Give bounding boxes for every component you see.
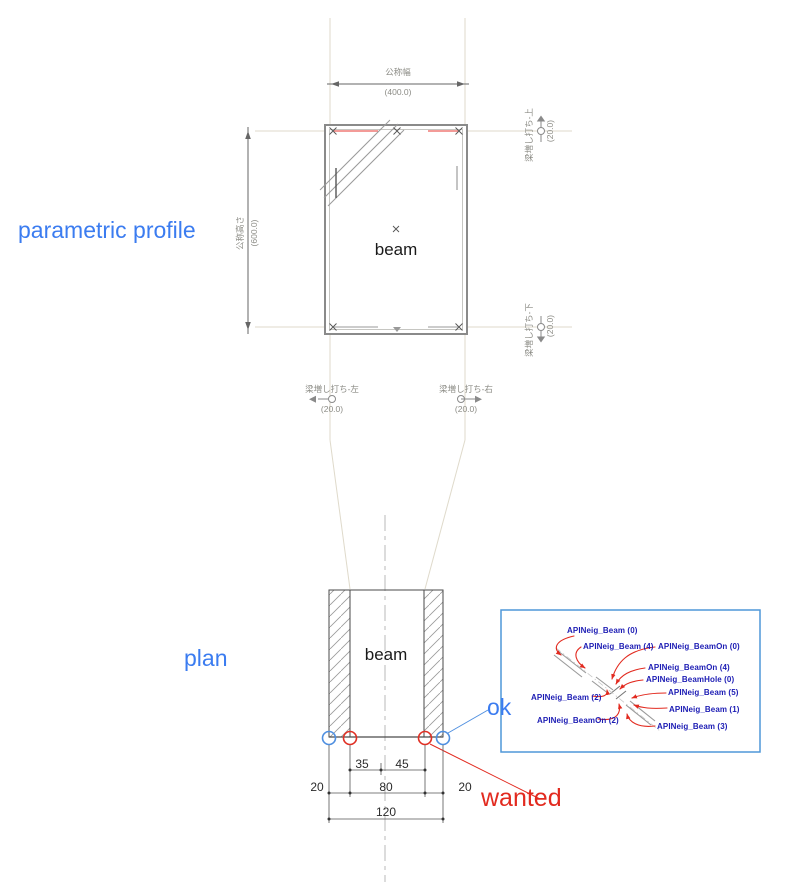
offset-bottom-name: 梁増し打ち-下 (523, 303, 535, 357)
dim-height-value: (600.0) (249, 220, 259, 247)
label-parametric-profile: parametric profile (18, 217, 196, 244)
offset-right-name: 梁増し打ち-右 (426, 383, 506, 395)
api-label-beam-0: APINeig_Beam (0) (567, 626, 638, 635)
dim-width (327, 81, 469, 87)
dim-width-value: (400.0) (358, 87, 438, 97)
plan-dim-20-right: 20 (450, 780, 480, 794)
offset-right-value: (20.0) (436, 404, 496, 414)
api-label-beam-5: APINeig_Beam (5) (668, 688, 739, 697)
plan-dim-20-left: 20 (302, 780, 332, 794)
profile-beam-label: beam (356, 240, 436, 260)
api-label-beamon-0: APINeig_BeamOn (0) (658, 642, 740, 651)
dim-height-name: 公称高さ (234, 216, 246, 250)
label-plan: plan (184, 645, 227, 672)
profile-view (320, 120, 467, 334)
offset-top-name: 梁増し打ち-上 (523, 108, 535, 162)
offset-top-value: (20.0) (545, 120, 555, 142)
cad-annotation-canvas: parametric profile plan ok wanted beam b… (0, 0, 800, 892)
pin-offset-left[interactable] (309, 396, 336, 403)
api-label-beam-4: APINeig_Beam (4) (583, 642, 654, 651)
plan-beam-label: beam (346, 645, 426, 665)
ok-leader-line (448, 710, 488, 733)
label-ok: ok (487, 694, 511, 721)
offset-bottom-value: (20.0) (545, 315, 555, 337)
api-label-beam-2: APINeig_Beam (2) (531, 693, 602, 702)
api-label-beam-3: APINeig_Beam (3) (657, 722, 728, 731)
offset-left-value: (20.0) (302, 404, 362, 414)
api-label-beam-1: APINeig_Beam (1) (669, 705, 740, 714)
dim-width-name: 公称幅 (358, 66, 438, 78)
pin-offset-right[interactable] (458, 396, 483, 403)
offset-left-name: 梁増し打ち-左 (292, 383, 372, 395)
pin-offset-bottom[interactable] (537, 316, 545, 343)
api-label-beamon-2: APINeig_BeamOn (2) (537, 716, 619, 725)
label-wanted: wanted (481, 784, 562, 813)
plan-dim-45: 45 (387, 757, 417, 771)
plan-dim-35: 35 (347, 757, 377, 771)
pin-offset-top[interactable] (537, 116, 545, 143)
plan-dim-80: 80 (371, 780, 401, 794)
api-label-beamhole-0: APINeig_BeamHole (0) (646, 675, 734, 684)
plan-dim-120: 120 (366, 805, 406, 819)
api-label-beamon-4: APINeig_BeamOn (4) (648, 663, 730, 672)
